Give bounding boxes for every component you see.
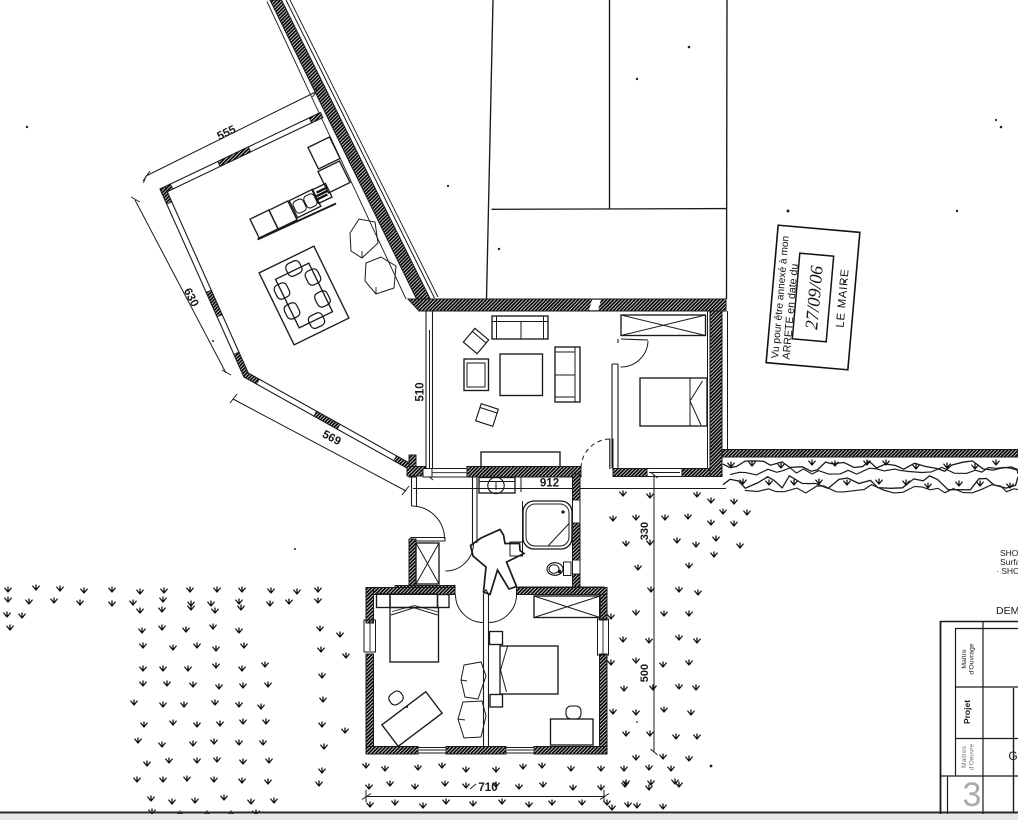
svg-text:Maîtres: Maîtres	[961, 745, 968, 767]
svg-text:Projet: Projet	[962, 700, 972, 724]
svg-text:· SHON: · SHON	[996, 566, 1018, 576]
svg-text:710: 710	[478, 782, 497, 794]
svg-text:G: G	[1008, 749, 1017, 763]
svg-text:Maître: Maître	[961, 649, 968, 668]
svg-text:330: 330	[639, 522, 651, 540]
svg-text:d'Oeuvre: d'Oeuvre	[969, 744, 976, 771]
svg-text:510: 510	[415, 382, 427, 401]
svg-text:3: 3	[963, 776, 982, 814]
svg-text:DEMAN: DEMAN	[996, 605, 1018, 617]
svg-text:912: 912	[540, 478, 559, 490]
svg-text:500: 500	[639, 664, 651, 682]
svg-text:d'Ouvrage: d'Ouvrage	[969, 643, 976, 674]
